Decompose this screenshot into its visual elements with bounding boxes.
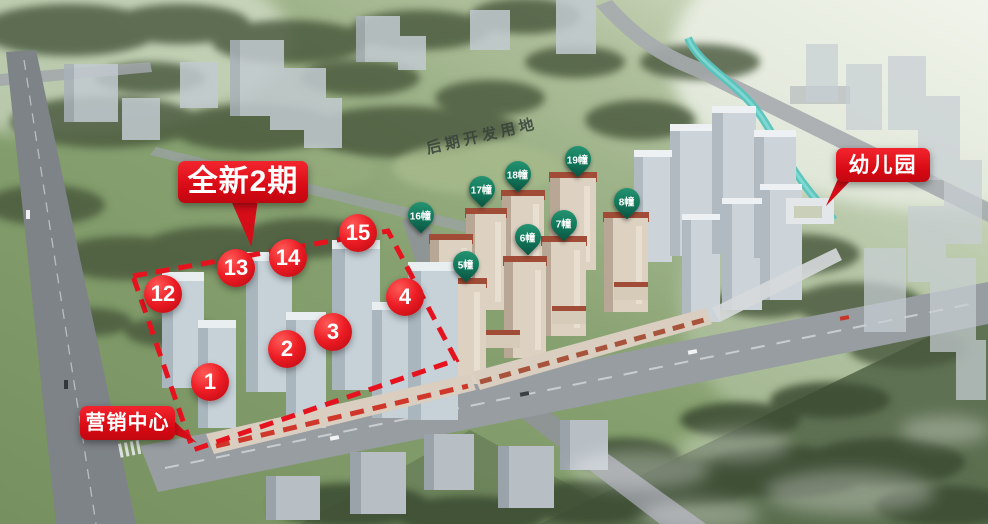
aerial-render-background [0,0,988,524]
building-pin-7-label: 7幢 [556,216,572,231]
phase2-callout[interactable]: 全新2期 [178,161,308,203]
building-circle-12[interactable]: 12 [144,275,182,313]
building-pin-8-label: 8幢 [619,194,635,209]
aerial-masterplan-image: 后期开发用地 16幢 17幢 18幢 19幢 8幢 7幢 6幢 5幢 1 2 3… [0,0,988,524]
building-circle-13[interactable]: 13 [217,249,255,287]
building-circle-4[interactable]: 4 [386,278,424,316]
building-pin-18-label: 18幢 [507,167,528,182]
building-circle-14[interactable]: 14 [269,239,307,277]
marketing-center-callout[interactable]: 营销中心 [80,406,175,440]
building-circle-1[interactable]: 1 [191,363,229,401]
building-circle-2[interactable]: 2 [268,330,306,368]
building-pin-17-label: 17幢 [471,182,492,197]
building-circle-15[interactable]: 15 [339,214,377,252]
building-pin-19-label: 19幢 [567,152,588,167]
kindergarten-callout[interactable]: 幼儿园 [836,148,930,182]
building-pin-6-label: 6幢 [520,230,536,245]
building-pin-16-label: 16幢 [410,208,431,223]
building-pin-5-label: 5幢 [458,257,474,272]
building-circle-3[interactable]: 3 [314,313,352,351]
